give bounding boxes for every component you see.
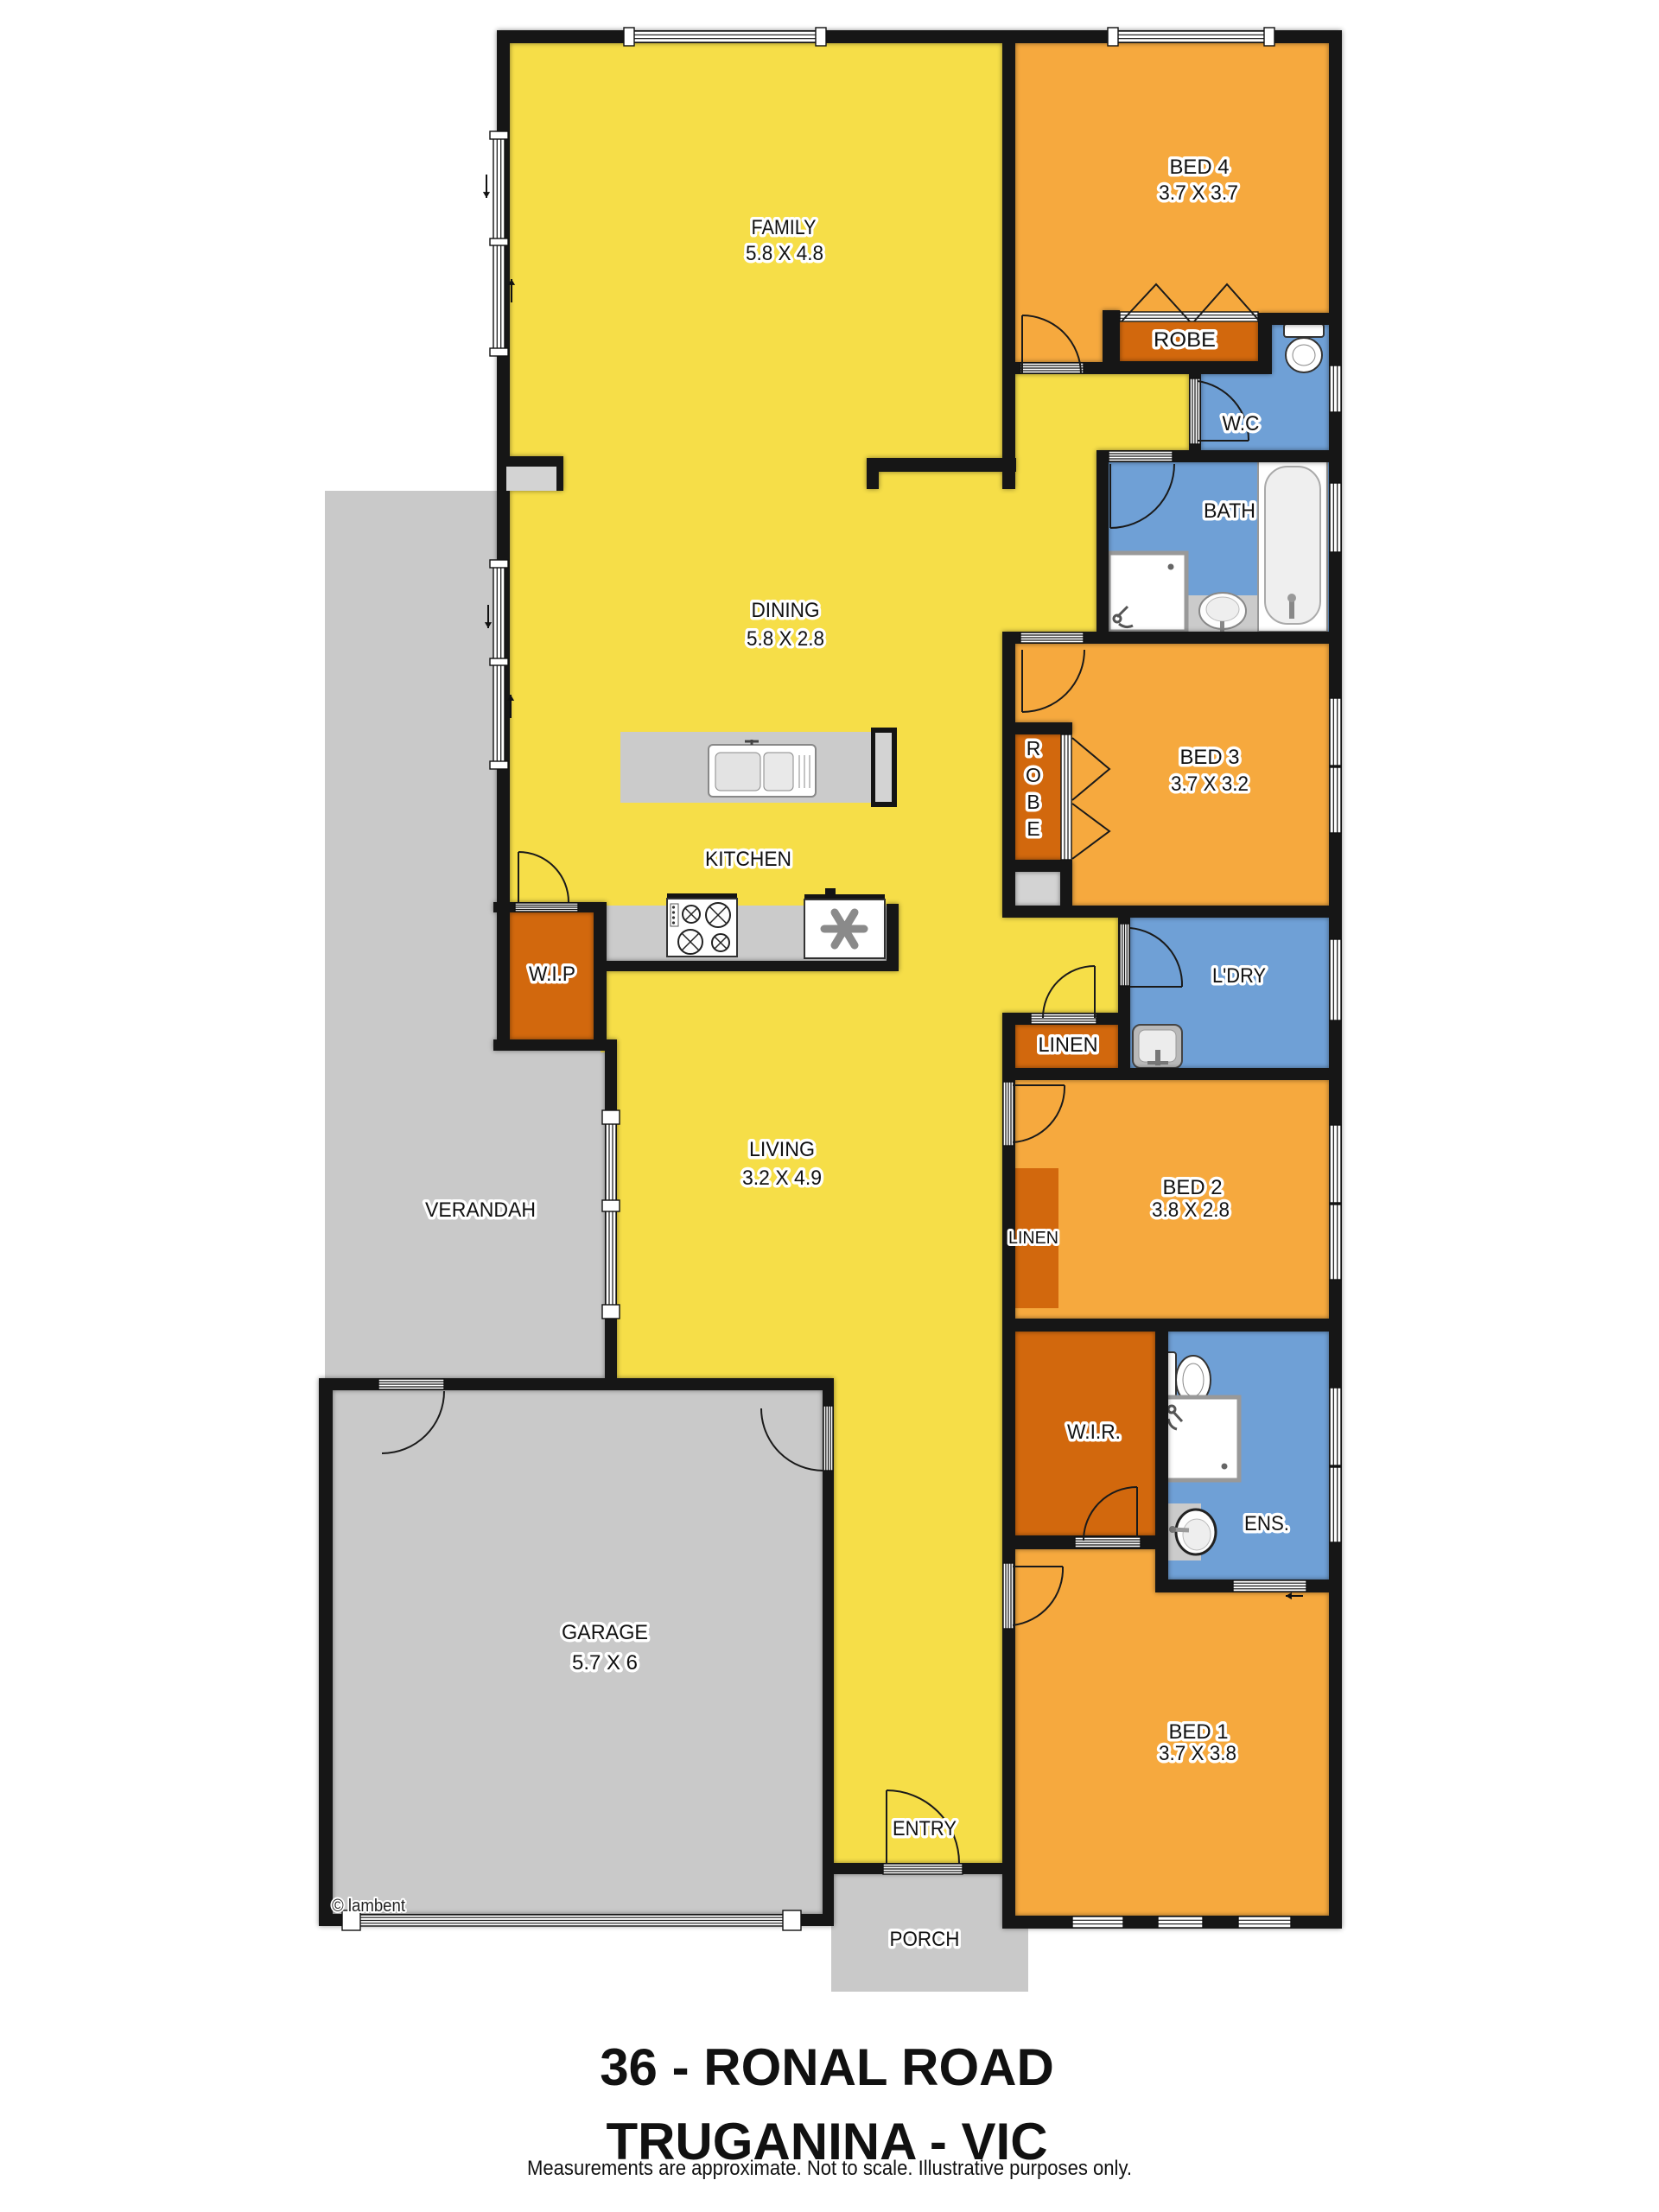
svg-text:ENS.: ENS. (1244, 1512, 1289, 1535)
svg-text:O: O (1026, 764, 1041, 786)
svg-text:5.7 X 6: 5.7 X 6 (572, 1651, 638, 1675)
svg-text:36 - RONAL ROAD: 36 - RONAL ROAD (600, 2038, 1054, 2096)
svg-text:Measurements are approximate.: Measurements are approximate. Not to sca… (527, 2157, 1132, 2180)
svg-text:KITCHEN: KITCHEN (705, 848, 791, 871)
svg-text:BATH: BATH (1204, 499, 1255, 523)
svg-text:BED 2: BED 2 (1163, 1176, 1223, 1199)
svg-text:B: B (1027, 791, 1039, 813)
svg-text:E: E (1027, 817, 1039, 840)
svg-text:5.8 X 2.8: 5.8 X 2.8 (747, 627, 824, 651)
svg-text:GARAGE: GARAGE (562, 1621, 648, 1644)
svg-text:3.7 X 3.2: 3.7 X 3.2 (1171, 772, 1249, 796)
svg-text:LINEN: LINEN (1039, 1033, 1098, 1057)
svg-text:3.2 X 4.9: 3.2 X 4.9 (742, 1166, 822, 1190)
svg-text:5.8 X 4.8: 5.8 X 4.8 (746, 242, 823, 265)
svg-text:© lambent: © lambent (332, 1897, 405, 1916)
svg-text:FAMILY: FAMILY (752, 216, 817, 239)
svg-text:ROBE: ROBE (1154, 328, 1216, 352)
svg-text:PORCH: PORCH (890, 1928, 960, 1951)
svg-text:ENTRY: ENTRY (893, 1817, 957, 1840)
svg-text:BED 1: BED 1 (1169, 1720, 1229, 1744)
svg-text:BED 4: BED 4 (1170, 156, 1230, 179)
svg-text:BED 3: BED 3 (1180, 746, 1240, 769)
svg-text:3.8 X 2.8: 3.8 X 2.8 (1152, 1198, 1230, 1222)
svg-text:L'DRY: L'DRY (1212, 964, 1266, 988)
svg-text:3.7 X 3.7: 3.7 X 3.7 (1159, 181, 1238, 205)
svg-text:W.I.P: W.I.P (529, 963, 575, 986)
svg-text:W.I.R.: W.I.R. (1067, 1421, 1121, 1444)
svg-text:LINEN: LINEN (1008, 1229, 1058, 1248)
svg-text:3.7 X 3.8: 3.7 X 3.8 (1159, 1742, 1236, 1765)
svg-text:W.C: W.C (1223, 412, 1260, 435)
svg-text:VERANDAH: VERANDAH (425, 1198, 536, 1222)
svg-text:R: R (1027, 737, 1041, 760)
svg-text:LIVING: LIVING (749, 1138, 815, 1161)
svg-text:DINING: DINING (752, 599, 820, 622)
